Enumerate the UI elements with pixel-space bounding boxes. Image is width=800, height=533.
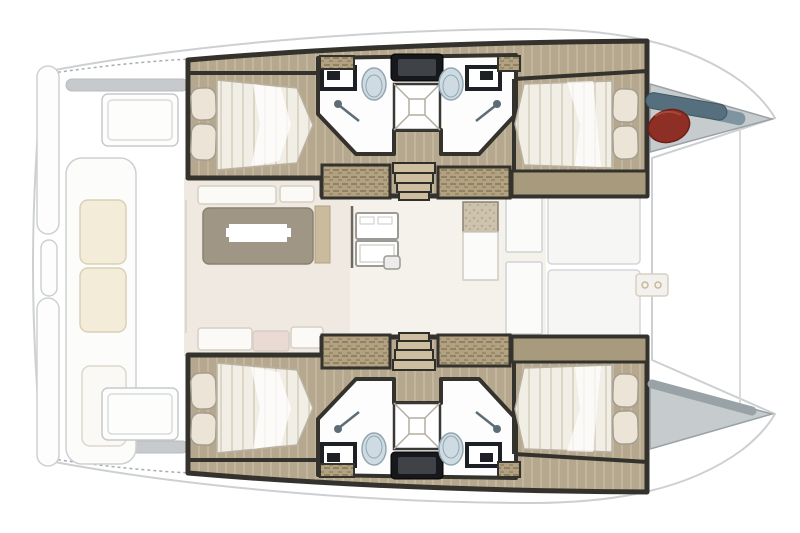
port-side-deck: [512, 171, 647, 196]
cockpit-seat-bottom: [102, 388, 178, 440]
galley-sink-unit: [384, 256, 400, 269]
galley-end-cabinet: [315, 206, 330, 263]
port-deck-hatch: [391, 54, 443, 81]
port-locker-aft: [320, 56, 354, 69]
starboard-aft-bed-pillow-1: [190, 413, 216, 446]
table-inlay-tab-right: [287, 228, 291, 237]
starboard-forward-bed-pillow-1: [612, 411, 638, 445]
aft-bench-cushion-1: [80, 200, 126, 264]
settee-back-bottom-3: [291, 327, 323, 348]
port-steps-landing-forward: [438, 167, 510, 198]
cockpit-seat-top: [102, 94, 178, 146]
port-shower-pan: [394, 84, 440, 130]
starboard-side-deck: [512, 337, 647, 362]
starboard-toilet-aft: [362, 433, 386, 465]
aft-bench-cushion-2: [80, 268, 126, 332]
starboard-companionway-steps: [393, 333, 435, 370]
port-aft-cabin-bed: [190, 80, 313, 170]
starboard-shower-pan: [394, 403, 440, 449]
catamaran-deck-plan: [0, 0, 800, 533]
starboard-steps-landing-aft: [322, 335, 390, 368]
port-aft-bed-pillow-2: [190, 124, 216, 161]
windlass-icon: [636, 274, 668, 296]
starboard-sink-forward: [467, 444, 500, 466]
port-aft-bed-pillow-1: [190, 88, 216, 121]
settee-back-top-1: [198, 186, 276, 204]
port-sink-forward: [467, 67, 500, 89]
starboard-aft-cabin-bed: [190, 363, 313, 453]
floor-plan-canvas: [0, 0, 800, 533]
table-inlay-tab-left: [226, 228, 230, 237]
starboard-deck-hatch: [391, 452, 443, 479]
transom-step-center: [41, 240, 57, 296]
forward-bulkhead-panel-bottom: [506, 262, 542, 334]
galley: [352, 206, 400, 269]
davit-beam-top: [66, 79, 188, 91]
starboard-forward-bed-pillow-2: [612, 374, 638, 408]
transom-platform-port: [37, 66, 59, 234]
port-forward-bed-pillow-2: [612, 126, 638, 160]
port-locker-forward: [498, 56, 520, 71]
port-toilet-forward: [439, 68, 463, 100]
starboard-sink-aft: [322, 444, 355, 466]
transom-platform-starboard: [37, 298, 59, 466]
starboard-aft-bed-pillow-2: [190, 373, 216, 410]
port-steps-landing-aft: [322, 165, 390, 198]
port-sink-aft: [322, 67, 355, 89]
settee-back-bottom-2: [253, 331, 289, 351]
chart-cabinet-base: [463, 232, 498, 280]
chart-cabinet-top: [463, 202, 498, 232]
starboard-toilet-forward: [439, 433, 463, 465]
table-inlay: [229, 224, 287, 242]
port-forward-bed-pillow-1: [612, 89, 638, 123]
starboard-locker-forward: [498, 462, 520, 477]
port-companionway-steps: [393, 163, 435, 200]
settee-back-bottom-1: [198, 328, 252, 350]
chart-cabinet: [463, 202, 498, 280]
starboard-steps-landing-forward: [438, 335, 510, 366]
starboard-locker-aft: [320, 464, 354, 477]
port-toilet-aft: [362, 68, 386, 100]
settee-back-top-2: [280, 186, 314, 202]
